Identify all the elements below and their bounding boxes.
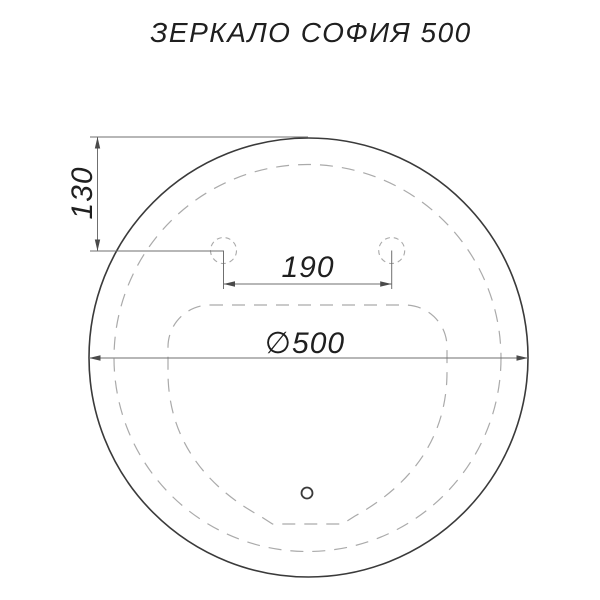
dim-190-arrow-left — [224, 281, 236, 286]
dim-500-arrow-left — [89, 355, 101, 360]
dim-130-arrow-up — [95, 137, 100, 149]
dim-500-label: ∅500 — [265, 327, 345, 360]
dim-190-arrow-right — [380, 281, 392, 286]
dim-130-arrow-down — [95, 240, 100, 252]
sensor-button-circle — [302, 488, 313, 499]
dimension-130: 130 — [66, 137, 308, 251]
drawing-title: ЗЕРКАЛО СОФИЯ 500 — [150, 17, 472, 48]
dim-190-label: 190 — [281, 251, 334, 284]
dim-500-arrow-right — [517, 355, 529, 360]
dimension-190: 190 — [224, 251, 392, 290]
technical-drawing: ЗЕРКАЛО СОФИЯ 500 130 — [0, 0, 600, 600]
drawing-canvas: ЗЕРКАЛО СОФИЯ 500 130 — [0, 0, 600, 600]
dim-130-label: 130 — [66, 166, 99, 219]
dimension-diameter-500: ∅500 — [89, 327, 528, 361]
